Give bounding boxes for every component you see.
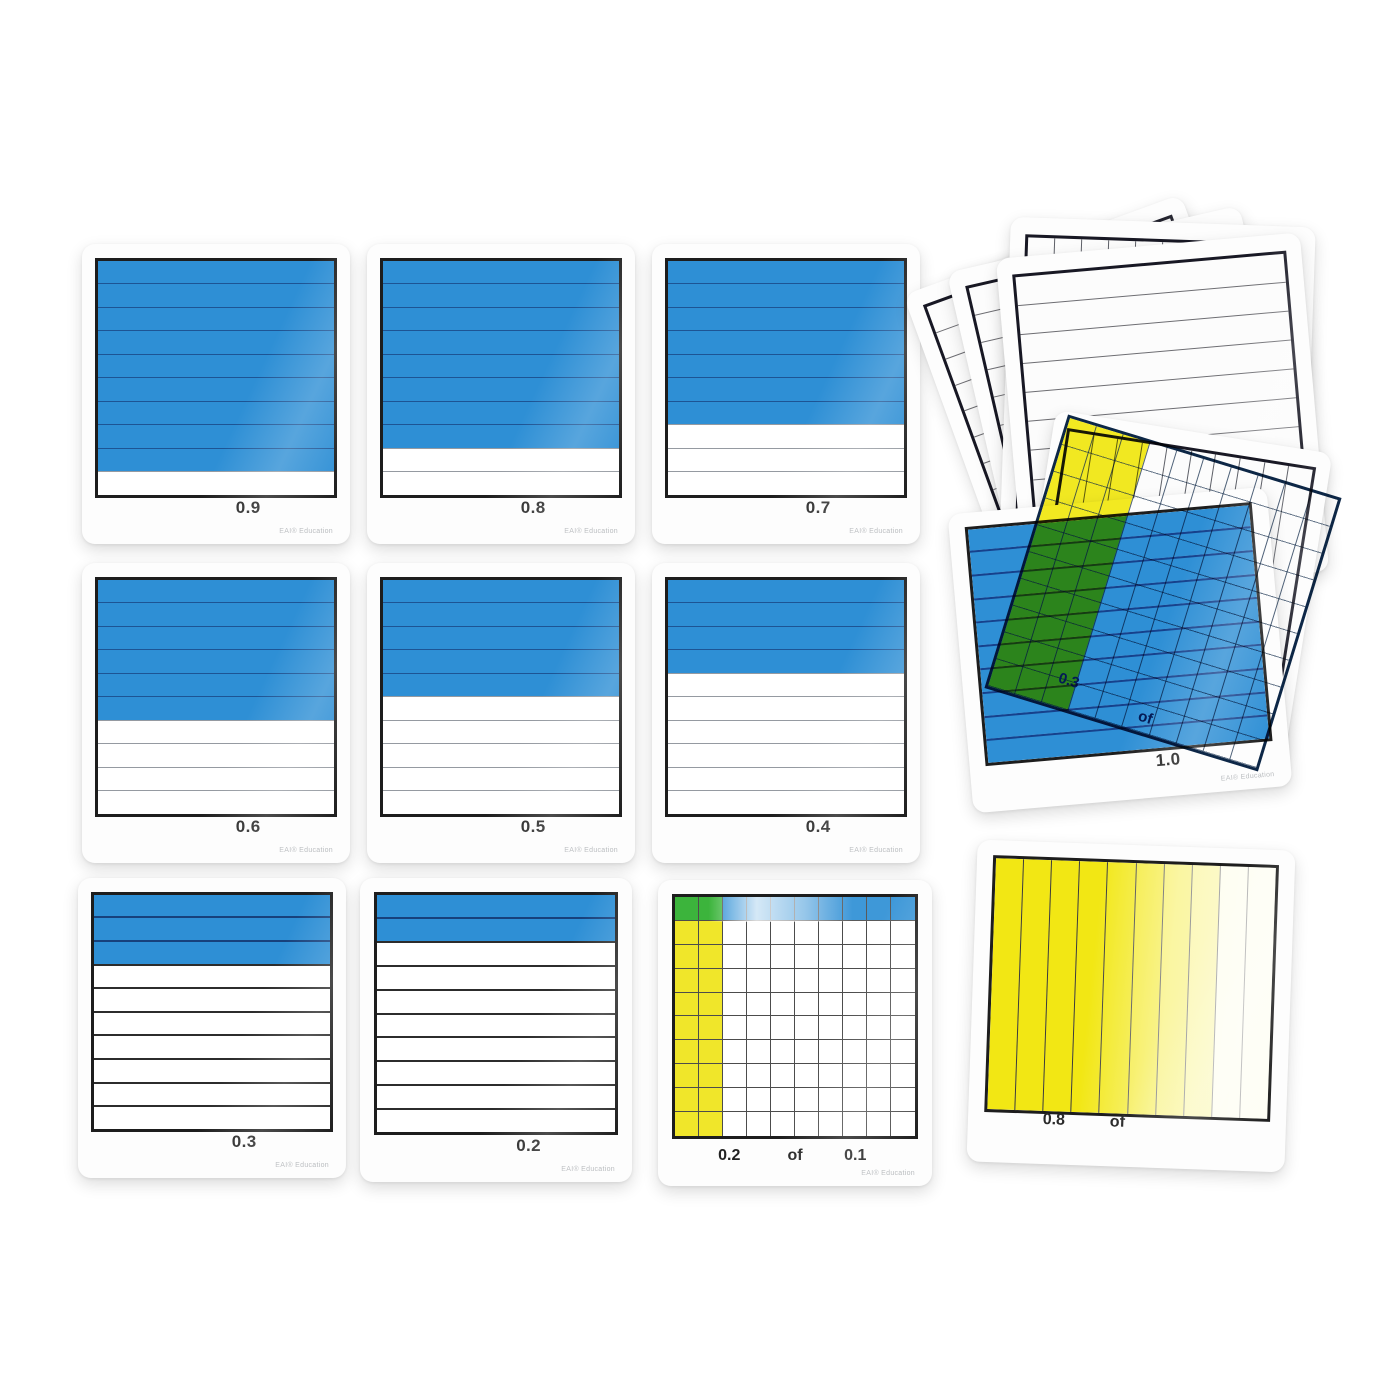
empty-cell xyxy=(747,1088,771,1112)
empty-tenth-strip xyxy=(98,790,333,814)
empty-cell xyxy=(771,1040,795,1064)
empty-cell xyxy=(795,1040,819,1064)
shaded-tenth-strip xyxy=(377,917,616,941)
shaded-tenth-strip xyxy=(668,626,903,650)
tenths-grid xyxy=(95,258,336,498)
yellow-cell xyxy=(675,969,699,993)
tenths-card-02: 0.2 EAI® Education xyxy=(360,878,632,1182)
shaded-tenth-strip xyxy=(383,602,618,626)
card-value-label: 0.3 xyxy=(232,1132,257,1152)
tenths-card-08: 0.8 EAI® Education xyxy=(367,244,635,544)
empty-cell xyxy=(867,1088,891,1112)
empty-tenth-strip xyxy=(383,743,618,767)
hundredths-card: 0.2 of 0.1 EAI® Education xyxy=(658,880,932,1186)
hundredths-grid xyxy=(672,894,919,1139)
tenths-card-04: 0.4 EAI® Education xyxy=(652,563,920,863)
empty-tenth-strip xyxy=(377,941,616,965)
yellow-cell xyxy=(675,1088,699,1112)
empty-tenth-strip xyxy=(94,1058,329,1082)
empty-tenth-strip xyxy=(668,424,903,448)
empty-cell xyxy=(771,1064,795,1088)
empty-tenth-strip xyxy=(94,964,329,988)
empty-cell xyxy=(891,945,915,969)
shaded-tenth-strip xyxy=(98,401,333,425)
empty-cell xyxy=(771,993,795,1017)
blue-cell xyxy=(819,897,843,921)
empty-cell xyxy=(819,945,843,969)
yellow-cell xyxy=(675,921,699,945)
empty-cell xyxy=(867,969,891,993)
empty-cell xyxy=(747,945,771,969)
empty-cell xyxy=(891,1040,915,1064)
shaded-tenth-strip xyxy=(94,940,329,964)
yellow-overlay-card-08: 0.8 of xyxy=(966,840,1295,1173)
shaded-tenth-strip xyxy=(383,580,618,603)
empty-cell xyxy=(747,969,771,993)
empty-cell xyxy=(723,993,747,1017)
empty-cell xyxy=(795,1016,819,1040)
blue-cell xyxy=(795,897,819,921)
empty-cell xyxy=(771,1088,795,1112)
shaded-tenth-strip xyxy=(668,602,903,626)
empty-tenth-strip xyxy=(668,673,903,697)
yellow-cell xyxy=(675,1040,699,1064)
yellow-cell xyxy=(675,945,699,969)
blue-cell xyxy=(891,897,915,921)
empty-cell xyxy=(747,921,771,945)
of-label: of xyxy=(1110,1113,1126,1132)
empty-cell xyxy=(843,1112,867,1136)
blue-cell xyxy=(723,897,747,921)
shaded-tenth-strip xyxy=(98,283,333,307)
empty-cell xyxy=(747,1040,771,1064)
shaded-tenth-strip xyxy=(94,916,329,940)
yellow-cell xyxy=(699,945,723,969)
yellow-cell xyxy=(699,969,723,993)
empty-tenth-strip xyxy=(98,471,333,495)
shaded-tenth-strip xyxy=(668,330,903,354)
shaded-tenth-strip xyxy=(668,649,903,673)
yellow-cell xyxy=(699,1112,723,1136)
empty-tenth-strip xyxy=(94,1105,329,1129)
shaded-tenth-strip xyxy=(98,261,333,284)
factor-right-label: 0.1 xyxy=(844,1147,866,1165)
shaded-tenth-strip xyxy=(383,377,618,401)
empty-cell xyxy=(843,1088,867,1112)
brand-text: EAI® Education xyxy=(561,1166,615,1173)
shaded-tenth-strip xyxy=(383,261,618,284)
empty-cell xyxy=(819,969,843,993)
empty-cell xyxy=(819,1040,843,1064)
yellow-cell xyxy=(675,993,699,1017)
shaded-tenth-strip xyxy=(98,307,333,331)
shaded-tenth-strip xyxy=(668,401,903,425)
yellow-cell xyxy=(699,1088,723,1112)
shaded-tenth-strip xyxy=(668,354,903,378)
empty-tenth-strip xyxy=(377,1084,616,1108)
empty-cell xyxy=(891,969,915,993)
empty-cell xyxy=(723,921,747,945)
empty-tenth-strip xyxy=(668,696,903,720)
of-label: of xyxy=(787,1147,802,1165)
factor-left-label: 0.8 xyxy=(1042,1111,1065,1130)
shaded-tenth-strip xyxy=(383,283,618,307)
shaded-tenth-strip xyxy=(98,580,333,603)
tenths-grid xyxy=(665,258,906,498)
shaded-tenth-strip xyxy=(668,261,903,284)
empty-cell xyxy=(771,1016,795,1040)
empty-cell xyxy=(867,993,891,1017)
empty-cell xyxy=(747,1064,771,1088)
empty-tenth-strip xyxy=(668,720,903,744)
tenths-grid xyxy=(380,258,621,498)
empty-cell xyxy=(819,1088,843,1112)
blue-cell xyxy=(867,897,891,921)
empty-tenth-strip xyxy=(668,448,903,472)
empty-tenth-strip xyxy=(377,1036,616,1060)
empty-cell xyxy=(795,1088,819,1112)
shaded-tenth-strip xyxy=(98,377,333,401)
shaded-tenth-strip xyxy=(383,649,618,673)
empty-cell xyxy=(891,921,915,945)
shaded-tenth-strip xyxy=(383,626,618,650)
shaded-tenth-strip xyxy=(98,673,333,697)
yellow-cell xyxy=(699,1040,723,1064)
empty-tenth-strip xyxy=(383,448,618,472)
empty-cell xyxy=(795,1064,819,1088)
blue-cell xyxy=(843,897,867,921)
shaded-tenth-strip xyxy=(383,330,618,354)
empty-cell xyxy=(891,993,915,1017)
empty-cell xyxy=(867,921,891,945)
shaded-tenth-strip xyxy=(383,424,618,448)
brand-text: EAI® Education xyxy=(861,1170,915,1177)
empty-tenth-strip xyxy=(383,790,618,814)
empty-cell xyxy=(819,1112,843,1136)
empty-tenth-strip xyxy=(668,471,903,495)
shaded-tenth-strip xyxy=(383,673,618,697)
yellow-cell xyxy=(699,1064,723,1088)
shaded-tenth-strip xyxy=(98,424,333,448)
empty-cell xyxy=(747,1112,771,1136)
overlap-green-cell xyxy=(675,897,699,921)
empty-tenth-strip xyxy=(377,1013,616,1037)
empty-tenth-strip xyxy=(377,1108,616,1132)
empty-cell xyxy=(795,945,819,969)
photo-stage: 0.9 EAI® Education 0.8 EAI® Education 0.… xyxy=(0,0,1400,1400)
card-value-label: 0.5 xyxy=(521,817,546,837)
shaded-tenth-strip xyxy=(668,377,903,401)
overlap-green-cell xyxy=(699,897,723,921)
empty-cell xyxy=(771,945,795,969)
blue-cell xyxy=(771,897,795,921)
tenths-grid xyxy=(665,577,906,817)
blue-cell xyxy=(747,897,771,921)
shaded-tenth-strip xyxy=(98,602,333,626)
empty-cell xyxy=(723,1088,747,1112)
empty-cell xyxy=(723,1040,747,1064)
shaded-tenth-strip xyxy=(98,330,333,354)
empty-tenth-strip xyxy=(668,743,903,767)
empty-cell xyxy=(867,1016,891,1040)
empty-cell xyxy=(843,1016,867,1040)
card-value-label: 0.2 xyxy=(516,1136,541,1156)
empty-cell xyxy=(843,1064,867,1088)
empty-cell xyxy=(723,1112,747,1136)
card-value-label: 0.4 xyxy=(806,817,831,837)
tenths-card-09: 0.9 EAI® Education xyxy=(82,244,350,544)
empty-tenth-strip xyxy=(94,987,329,1011)
empty-tenth-strip xyxy=(383,720,618,744)
empty-cell xyxy=(747,1016,771,1040)
empty-cell xyxy=(795,993,819,1017)
shaded-tenth-strip xyxy=(98,696,333,720)
shaded-tenth-strip xyxy=(98,626,333,650)
tenths-card-05: 0.5 EAI® Education xyxy=(367,563,635,863)
empty-tenth-strip xyxy=(94,1011,329,1035)
yellow-columns-grid xyxy=(984,855,1279,1122)
tenths-grid xyxy=(380,577,621,817)
shaded-tenth-strip xyxy=(98,649,333,673)
empty-cell xyxy=(843,993,867,1017)
empty-tenth-strip xyxy=(383,696,618,720)
empty-tenth-strip xyxy=(98,743,333,767)
brand-text: EAI® Education xyxy=(279,847,333,854)
empty-cell xyxy=(867,945,891,969)
empty-cell xyxy=(891,1016,915,1040)
card-value-label: 0.6 xyxy=(236,817,261,837)
empty-cell xyxy=(819,993,843,1017)
empty-cell xyxy=(843,921,867,945)
yellow-cell xyxy=(675,1064,699,1088)
brand-text: EAI® Education xyxy=(279,528,333,535)
card-value-label: 0.7 xyxy=(806,498,831,518)
shaded-tenth-strip xyxy=(94,895,329,917)
card-value-label: 1.0 xyxy=(1155,749,1181,771)
tenths-grid xyxy=(91,892,332,1132)
factor-left-label: 0.2 xyxy=(718,1147,740,1165)
yellow-cell xyxy=(699,993,723,1017)
empty-tenth-strip xyxy=(94,1082,329,1106)
brand-text: EAI® Education xyxy=(275,1162,329,1169)
yellow-cell xyxy=(675,1016,699,1040)
empty-cell xyxy=(771,969,795,993)
empty-cell xyxy=(723,969,747,993)
yellow-cell xyxy=(675,1112,699,1136)
empty-tenth-strip xyxy=(668,790,903,814)
empty-cell xyxy=(891,1088,915,1112)
shaded-tenth-strip xyxy=(383,401,618,425)
shaded-tenth-strip xyxy=(668,307,903,331)
brand-text: EAI® Education xyxy=(849,528,903,535)
empty-tenth-strip xyxy=(98,767,333,791)
shaded-tenth-strip xyxy=(383,307,618,331)
empty-cell xyxy=(819,921,843,945)
empty-cell xyxy=(819,1016,843,1040)
yellow-cell xyxy=(699,921,723,945)
empty-cell xyxy=(723,945,747,969)
shaded-tenth-strip xyxy=(668,580,903,603)
empty-cell xyxy=(819,1064,843,1088)
empty-cell xyxy=(771,921,795,945)
tenths-card-07: 0.7 EAI® Education xyxy=(652,244,920,544)
tenths-card-03: 0.3 EAI® Education xyxy=(78,878,346,1178)
shaded-tenth-strip xyxy=(98,354,333,378)
empty-tenth-strip xyxy=(98,720,333,744)
brand-text: EAI® Education xyxy=(564,847,618,854)
empty-cell xyxy=(795,1112,819,1136)
empty-cell xyxy=(843,969,867,993)
empty-cell xyxy=(723,1016,747,1040)
empty-cell xyxy=(891,1064,915,1088)
shaded-tenth-strip xyxy=(668,283,903,307)
empty-cell xyxy=(891,1112,915,1136)
empty-tenth-strip xyxy=(377,965,616,989)
tenths-grid xyxy=(374,892,619,1135)
empty-cell xyxy=(867,1112,891,1136)
empty-cell xyxy=(795,921,819,945)
tenths-card-06: 0.6 EAI® Education xyxy=(82,563,350,863)
empty-cell xyxy=(867,1064,891,1088)
empty-cell xyxy=(771,1112,795,1136)
empty-tenth-strip xyxy=(668,767,903,791)
shaded-tenth-strip xyxy=(377,895,616,917)
tenths-grid xyxy=(95,577,336,817)
empty-cell xyxy=(747,993,771,1017)
shaded-tenth-strip xyxy=(98,448,333,472)
empty-tenth-strip xyxy=(383,767,618,791)
empty-cell xyxy=(795,969,819,993)
brand-text: EAI® Education xyxy=(564,528,618,535)
empty-cell xyxy=(843,945,867,969)
shaded-tenth-strip xyxy=(383,354,618,378)
yellow-cell xyxy=(699,1016,723,1040)
card-value-label: 0.9 xyxy=(236,498,261,518)
card-value-label: 0.8 xyxy=(521,498,546,518)
empty-tenth-strip xyxy=(94,1034,329,1058)
brand-text: EAI® Education xyxy=(849,847,903,854)
empty-tenth-strip xyxy=(377,989,616,1013)
empty-tenth-strip xyxy=(377,1060,616,1084)
empty-cell xyxy=(843,1040,867,1064)
brand-text: EAI® Education xyxy=(1221,771,1275,783)
empty-cell xyxy=(867,1040,891,1064)
empty-tenth-strip xyxy=(383,471,618,495)
empty-cell xyxy=(723,1064,747,1088)
